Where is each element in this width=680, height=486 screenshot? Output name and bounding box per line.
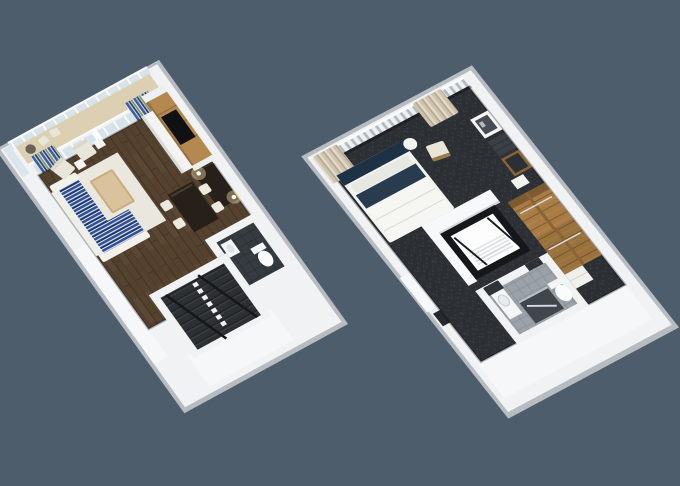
- floorplan-image: [0, 0, 680, 486]
- floorplan-svg: [0, 0, 680, 486]
